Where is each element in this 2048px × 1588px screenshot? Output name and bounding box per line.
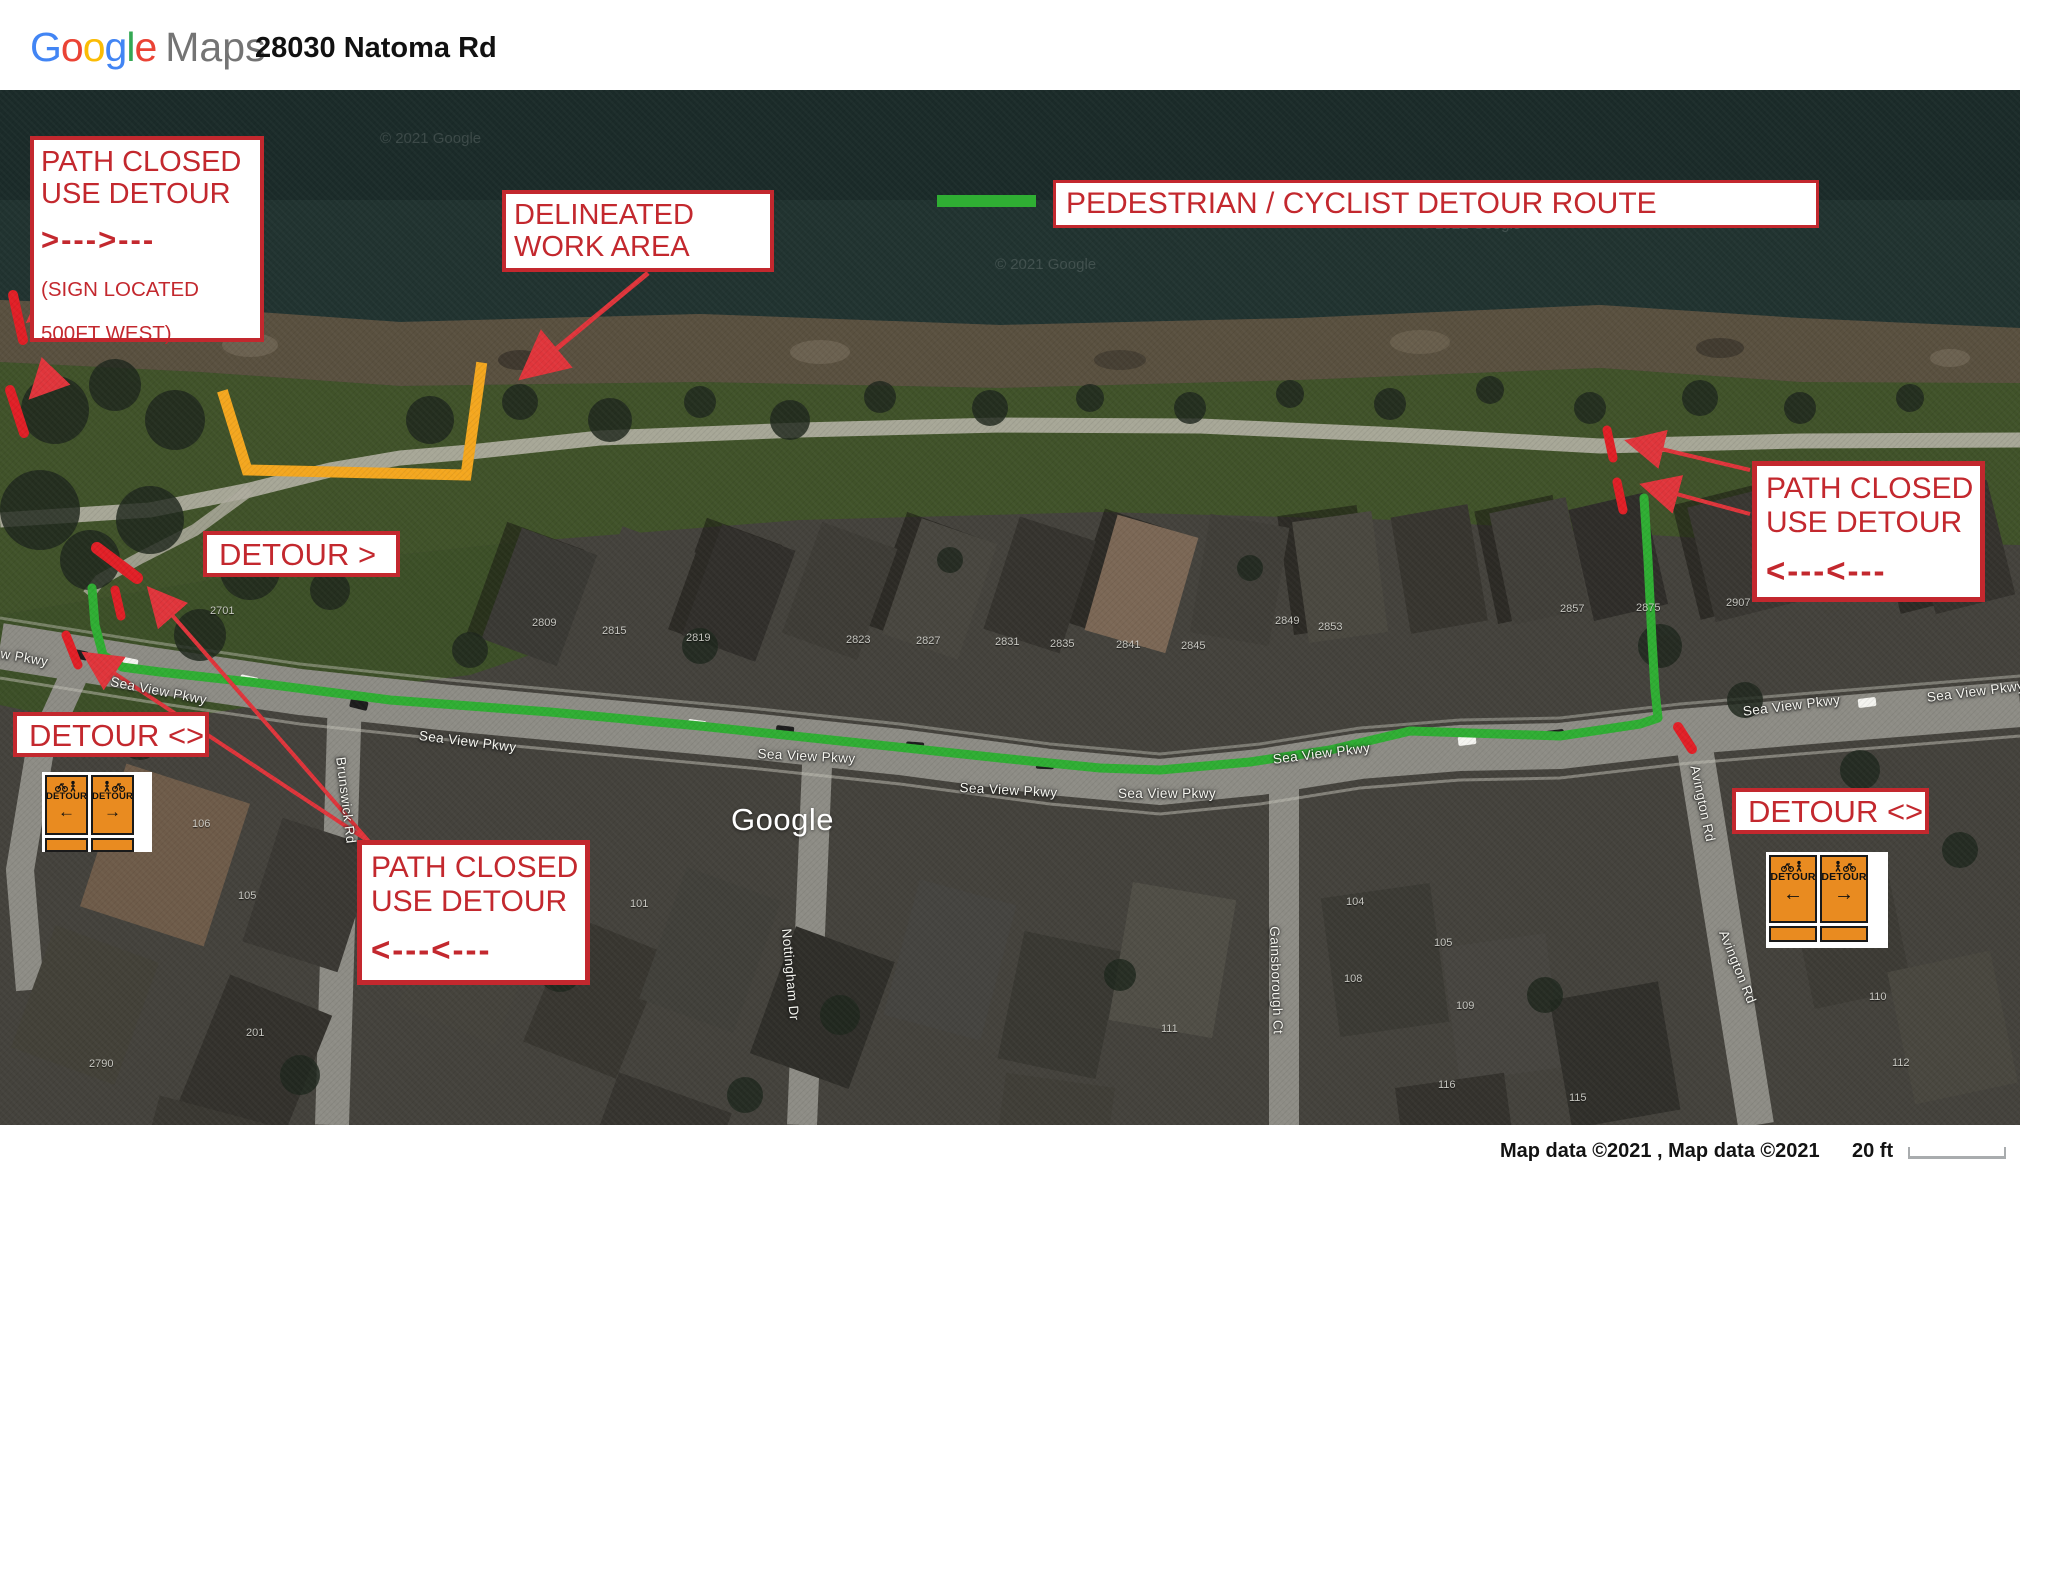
annotation-line: USE DETOUR <box>1766 506 1980 540</box>
detour-sign-stub <box>1769 926 1817 942</box>
map-attribution: Map data ©2021 , Map data ©2021 <box>1500 1140 1860 1163</box>
annotation-line: PATH CLOSED <box>1766 472 1980 506</box>
house-number: 112 <box>1892 1057 1910 1069</box>
map-artwork <box>0 90 2020 1125</box>
annotation-arrow-text: <---<--- <box>371 932 585 969</box>
detour-sign-photo-west: DETOUR ← DETOUR → <box>42 772 152 852</box>
house-number: 105 <box>1434 937 1452 949</box>
page: GoogleMaps 28030 Natoma Rd <box>0 0 2048 1588</box>
annotation-delineated-work-area: DELINEATED WORK AREA <box>502 190 774 272</box>
house-number: 106 <box>192 818 210 830</box>
house-number: 2815 <box>602 625 626 637</box>
detour-sign-right-arrow-tile: DETOUR → <box>91 775 134 835</box>
house-number: 115 <box>1569 1092 1587 1104</box>
house-number: 105 <box>238 890 256 902</box>
header-bar: GoogleMaps 28030 Natoma Rd <box>0 0 2048 90</box>
annotation-arrow-text: >--->--- <box>41 223 260 258</box>
annotation-note: 500FT WEST) <box>41 322 260 347</box>
annotation-line: DETOUR > <box>219 538 396 573</box>
google-logo-letters: Google <box>30 24 156 70</box>
house-number: 2845 <box>1181 640 1205 652</box>
annotation-line: PATH CLOSED <box>41 146 260 178</box>
page-title: 28030 Natoma Rd <box>255 32 497 65</box>
house-number: 2823 <box>846 634 870 646</box>
copyright-watermark: © 2021 Google <box>380 130 481 147</box>
annotation-line: DETOUR <> <box>29 719 205 754</box>
annotation-line: PATH CLOSED <box>371 851 585 885</box>
scale-label: 20 ft <box>1852 1140 1893 1163</box>
annotation-path-closed-west: PATH CLOSED USE DETOUR >--->--- (SIGN LO… <box>30 136 264 342</box>
logo-letter: e <box>134 24 156 70</box>
satellite-map-canvas[interactable]: © 2021 Google© 2021 Google© 2021 Google … <box>0 90 2020 1125</box>
detour-sign-label: DETOUR <box>46 792 87 802</box>
detour-sign-left-arrow-tile: DETOUR ← <box>1769 855 1817 923</box>
annotation-path-closed-east: PATH CLOSED USE DETOUR <---<--- <box>1752 461 1985 602</box>
detour-sign-photo-east: DETOUR ← DETOUR → <box>1766 852 1888 948</box>
house-number: 110 <box>1869 991 1887 1003</box>
house-number: 111 <box>1161 1023 1178 1035</box>
house-number: 2849 <box>1275 615 1299 627</box>
detour-sign-stub <box>45 838 88 852</box>
detour-sign-left-arrow-tile: DETOUR ← <box>45 775 88 835</box>
annotation-line: USE DETOUR <box>41 178 260 210</box>
scale-bar <box>1908 1147 2006 1159</box>
house-number: 2831 <box>995 636 1019 648</box>
logo-letter: g <box>105 24 127 70</box>
annotation-line: WORK AREA <box>514 231 770 263</box>
house-number: 108 <box>1344 973 1362 985</box>
house-number: 2841 <box>1116 639 1140 651</box>
annotation-line: DETOUR <> <box>1748 795 1925 830</box>
house-number: 116 <box>1438 1079 1456 1091</box>
logo-letter: o <box>83 24 105 70</box>
annotation-detour-west: DETOUR <> <box>13 712 209 757</box>
annotation-arrow-text: <---<--- <box>1766 553 1980 590</box>
house-number: 2701 <box>210 605 234 617</box>
detour-sign-right-arrow-tile: DETOUR → <box>1820 855 1868 923</box>
logo-letter: G <box>30 24 61 70</box>
detour-sign-label: DETOUR <box>92 792 133 802</box>
logo-letter: o <box>61 24 83 70</box>
house-number: 201 <box>246 1027 264 1039</box>
house-number: 2875 <box>1636 602 1660 614</box>
detour-sign-label: DETOUR <box>1821 872 1866 883</box>
house-number: 101 <box>630 898 648 910</box>
house-number: 2827 <box>916 635 940 647</box>
annotation-detour-southeast: DETOUR <> <box>1732 788 1929 834</box>
google-maps-logo: GoogleMaps <box>30 24 266 71</box>
annotation-note: (SIGN LOCATED <box>41 278 260 303</box>
left-arrow-icon: ← <box>58 803 75 820</box>
annotation-path-closed-mid: PATH CLOSED USE DETOUR <---<--- <box>357 840 590 985</box>
house-number: 2790 <box>89 1058 113 1070</box>
annotation-line: USE DETOUR <box>371 885 585 919</box>
street-label: Sea View Pkwy <box>1118 786 1216 801</box>
annotation-legend: PEDESTRIAN / CYCLIST DETOUR ROUTE <box>1053 180 1819 228</box>
left-arrow-icon: ← <box>1783 884 1803 904</box>
legend-label: PEDESTRIAN / CYCLIST DETOUR ROUTE <box>1066 187 1816 221</box>
house-number: 2853 <box>1318 621 1342 633</box>
detour-sign-stub <box>91 838 134 852</box>
house-number: 2907 <box>1726 597 1750 609</box>
house-number: 2857 <box>1560 603 1584 615</box>
copyright-watermark: © 2021 Google <box>995 256 1096 273</box>
annotation-detour-east: DETOUR > <box>203 531 400 577</box>
legend-route-swatch <box>937 195 1036 207</box>
house-number: 2819 <box>686 632 710 644</box>
right-arrow-icon: → <box>1834 884 1854 904</box>
detour-sign-label: DETOUR <box>1770 872 1815 883</box>
house-number: 104 <box>1346 896 1364 908</box>
house-number: 2809 <box>532 617 556 629</box>
annotation-line: DELINEATED <box>514 199 770 231</box>
house-number: 109 <box>1456 1000 1474 1012</box>
google-map-watermark: Google <box>731 802 834 838</box>
house-number: 2835 <box>1050 638 1074 650</box>
right-arrow-icon: → <box>104 803 121 820</box>
detour-sign-stub <box>1820 926 1868 942</box>
logo-maps-text: Maps <box>165 24 265 70</box>
